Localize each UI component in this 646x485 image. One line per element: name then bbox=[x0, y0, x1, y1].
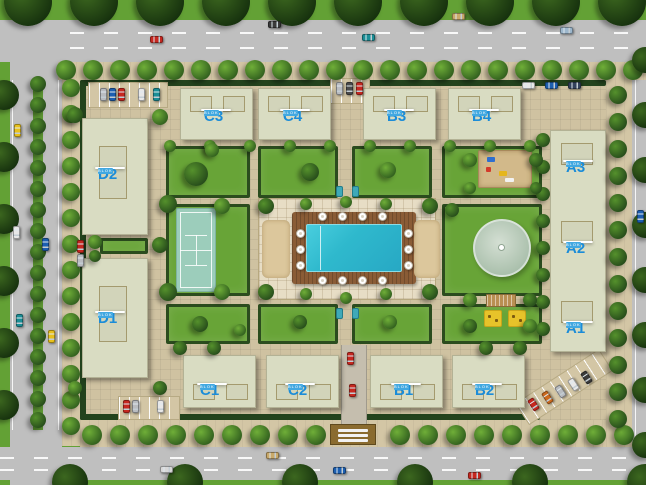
lounger-bench bbox=[336, 308, 343, 319]
tree bbox=[30, 412, 46, 428]
pergola-trellis bbox=[486, 294, 516, 307]
tree bbox=[164, 60, 184, 80]
umbrella-top bbox=[407, 248, 410, 251]
tree bbox=[258, 198, 274, 214]
tree bbox=[530, 425, 550, 445]
car bbox=[42, 238, 49, 251]
play-equipment bbox=[499, 171, 507, 176]
umbrella-top bbox=[407, 232, 410, 235]
pool-umbrella bbox=[318, 212, 327, 221]
building-courtyard-outline bbox=[226, 384, 248, 400]
building-sub-label: BLOK bbox=[204, 110, 219, 116]
tree bbox=[596, 60, 616, 80]
lounger-bench bbox=[352, 308, 359, 319]
tree bbox=[542, 60, 562, 80]
tree bbox=[524, 140, 536, 152]
umbrella-top bbox=[407, 264, 410, 267]
tree bbox=[536, 133, 550, 147]
tree bbox=[569, 60, 589, 80]
car bbox=[150, 36, 163, 43]
pool-umbrella bbox=[358, 212, 367, 221]
car bbox=[346, 82, 353, 95]
umbrella-top bbox=[361, 215, 364, 218]
car bbox=[336, 82, 343, 95]
mat-dot bbox=[488, 315, 491, 318]
building-courtyard-outline bbox=[309, 384, 331, 400]
mat-dot bbox=[495, 319, 498, 322]
tree bbox=[244, 140, 256, 152]
tree bbox=[30, 328, 46, 344]
car bbox=[637, 210, 644, 223]
tree bbox=[464, 182, 476, 194]
tree bbox=[218, 60, 238, 80]
sunbathing-sand bbox=[262, 220, 290, 278]
tree bbox=[306, 425, 326, 445]
umbrella-top bbox=[299, 264, 302, 267]
lane-dashes bbox=[0, 469, 646, 471]
building-sub-label: BLOK bbox=[98, 312, 113, 318]
umbrella-top bbox=[341, 279, 344, 282]
tree bbox=[609, 329, 627, 347]
car bbox=[452, 13, 465, 20]
tree bbox=[364, 140, 376, 152]
building-label-a1[interactable]: A1BLOK bbox=[563, 321, 593, 323]
tree bbox=[30, 286, 46, 302]
tree bbox=[30, 97, 46, 113]
tree bbox=[445, 203, 459, 217]
tree bbox=[340, 196, 352, 208]
tree bbox=[137, 60, 157, 80]
tree bbox=[250, 425, 270, 445]
lounger-bench bbox=[336, 186, 343, 197]
tree bbox=[614, 425, 634, 445]
tree bbox=[422, 284, 438, 300]
tree bbox=[62, 417, 80, 435]
tree bbox=[88, 235, 102, 249]
tree bbox=[30, 265, 46, 281]
building-label-c3[interactable]: C3BLOK bbox=[201, 109, 231, 111]
tree bbox=[513, 341, 527, 355]
tree bbox=[56, 60, 76, 80]
tree bbox=[159, 195, 177, 213]
tree bbox=[434, 60, 454, 80]
car bbox=[362, 34, 375, 41]
tree bbox=[380, 288, 392, 300]
tree bbox=[67, 107, 83, 123]
tree bbox=[463, 319, 477, 333]
tree bbox=[138, 425, 158, 445]
tree bbox=[30, 76, 46, 92]
tree bbox=[444, 140, 456, 152]
tree bbox=[326, 60, 346, 80]
tree bbox=[463, 293, 477, 307]
pool-umbrella bbox=[378, 276, 387, 285]
pool-umbrella bbox=[404, 229, 413, 238]
lawn bbox=[258, 146, 338, 198]
car bbox=[333, 467, 346, 474]
site-plan-canvas: D2BLOKD1BLOKC3BLOKC4BLOKB3BLOKB4BLOKA3BL… bbox=[0, 0, 646, 485]
tree bbox=[418, 425, 438, 445]
tree bbox=[152, 237, 168, 253]
gate-bar bbox=[338, 429, 369, 432]
car bbox=[132, 400, 139, 413]
pool-lane-line bbox=[320, 226, 321, 270]
car bbox=[568, 82, 581, 89]
car bbox=[468, 472, 481, 479]
pool-umbrella bbox=[318, 276, 327, 285]
playground-sandbox bbox=[478, 150, 532, 188]
tree bbox=[609, 221, 627, 239]
tree bbox=[502, 425, 522, 445]
car bbox=[100, 88, 107, 101]
car bbox=[356, 82, 363, 95]
tree bbox=[62, 157, 80, 175]
tree bbox=[153, 381, 167, 395]
car bbox=[118, 88, 125, 101]
tree bbox=[515, 60, 535, 80]
building-sub-label: BLOK bbox=[200, 384, 215, 390]
car bbox=[77, 240, 84, 253]
road bbox=[0, 447, 646, 480]
tree bbox=[609, 302, 627, 320]
car bbox=[138, 88, 145, 101]
tree bbox=[62, 183, 80, 201]
fountain-center bbox=[498, 244, 505, 251]
lane-dashes bbox=[70, 47, 646, 49]
play-equipment bbox=[505, 178, 514, 182]
car bbox=[153, 88, 160, 101]
building-block bbox=[183, 355, 256, 408]
tree bbox=[609, 194, 627, 212]
tree bbox=[609, 86, 627, 104]
pool-umbrella bbox=[404, 261, 413, 270]
tree bbox=[446, 425, 466, 445]
lounger-bench bbox=[352, 186, 359, 197]
sunbathing-sand bbox=[414, 220, 440, 278]
tree bbox=[301, 163, 319, 181]
tree bbox=[324, 140, 336, 152]
tree bbox=[30, 391, 46, 407]
tree bbox=[62, 339, 80, 357]
tree bbox=[89, 250, 101, 262]
umbrella-top bbox=[381, 215, 384, 218]
tree bbox=[173, 341, 187, 355]
building-label-b4[interactable]: B4BLOK bbox=[469, 109, 499, 111]
entrance-gate bbox=[330, 424, 376, 445]
lane-line bbox=[12, 80, 13, 430]
car bbox=[560, 27, 573, 34]
tree bbox=[586, 425, 606, 445]
umbrella-top bbox=[299, 248, 302, 251]
tree bbox=[245, 60, 265, 80]
tree bbox=[523, 319, 537, 333]
pool-umbrella bbox=[378, 212, 387, 221]
building-label-b2[interactable]: B2BLOK bbox=[472, 383, 502, 385]
car bbox=[157, 400, 164, 413]
tree bbox=[30, 349, 46, 365]
mat-dot bbox=[512, 315, 515, 318]
tennis-court bbox=[176, 208, 216, 292]
tree bbox=[205, 143, 219, 157]
tree bbox=[194, 425, 214, 445]
building-label-c1[interactable]: C1BLOK bbox=[197, 383, 227, 385]
tree bbox=[523, 293, 537, 307]
tree bbox=[536, 214, 550, 228]
tree bbox=[258, 284, 274, 300]
road bbox=[0, 20, 646, 62]
car bbox=[77, 254, 84, 267]
car bbox=[349, 384, 356, 397]
pool-umbrella bbox=[338, 212, 347, 221]
tree bbox=[30, 370, 46, 386]
tree bbox=[484, 140, 496, 152]
tree bbox=[62, 209, 80, 227]
tree bbox=[166, 425, 186, 445]
building-label-d1[interactable]: D1BLOK bbox=[95, 311, 125, 313]
car bbox=[545, 82, 558, 89]
tree bbox=[529, 153, 543, 167]
umbrella-top bbox=[321, 279, 324, 282]
building-label-c4[interactable]: C4BLOK bbox=[280, 109, 310, 111]
tree bbox=[380, 162, 396, 178]
tree bbox=[159, 283, 177, 301]
tree bbox=[407, 60, 427, 80]
car bbox=[266, 452, 279, 459]
building-label-b1[interactable]: B1BLOK bbox=[391, 383, 421, 385]
car bbox=[14, 124, 21, 137]
building-label-c2[interactable]: C2BLOK bbox=[285, 383, 315, 385]
building-sub-label: BLOK bbox=[566, 242, 581, 248]
building-sub-label: BLOK bbox=[288, 384, 303, 390]
umbrella-top bbox=[361, 279, 364, 282]
building-sub-label: BLOK bbox=[472, 110, 487, 116]
tree bbox=[609, 248, 627, 266]
tree bbox=[536, 322, 550, 336]
tree bbox=[300, 288, 312, 300]
umbrella-top bbox=[321, 215, 324, 218]
building-label-a3[interactable]: A3BLOK bbox=[563, 160, 593, 162]
tree bbox=[353, 60, 373, 80]
tree bbox=[62, 287, 80, 305]
tree bbox=[30, 202, 46, 218]
tree bbox=[110, 60, 130, 80]
tree bbox=[463, 153, 477, 167]
car bbox=[123, 400, 130, 413]
play-equipment bbox=[486, 167, 491, 172]
tree bbox=[68, 381, 82, 395]
tree bbox=[422, 198, 438, 214]
tree bbox=[609, 275, 627, 293]
car bbox=[160, 466, 173, 473]
umbrella-top bbox=[381, 279, 384, 282]
tree bbox=[536, 295, 550, 309]
mat-dot bbox=[519, 319, 522, 322]
tree bbox=[474, 425, 494, 445]
tree bbox=[214, 284, 230, 300]
tree bbox=[207, 341, 221, 355]
building-sub-label: BLOK bbox=[98, 168, 113, 174]
car bbox=[48, 330, 55, 343]
pool-umbrella bbox=[296, 245, 305, 254]
gate-bar bbox=[338, 434, 369, 437]
tree bbox=[152, 109, 168, 125]
tree bbox=[558, 425, 578, 445]
tree bbox=[214, 198, 230, 214]
tree bbox=[609, 410, 627, 428]
tennis-center-line bbox=[196, 235, 197, 265]
tree bbox=[222, 425, 242, 445]
car bbox=[109, 88, 116, 101]
building-courtyard-outline bbox=[413, 384, 435, 400]
tree bbox=[284, 140, 296, 152]
tree bbox=[184, 162, 208, 186]
tree bbox=[404, 140, 416, 152]
tree bbox=[536, 268, 550, 282]
building-sub-label: BLOK bbox=[566, 161, 581, 167]
lane-line bbox=[58, 80, 59, 430]
tree bbox=[30, 118, 46, 134]
tree bbox=[488, 60, 508, 80]
car bbox=[522, 82, 535, 89]
tree bbox=[62, 79, 80, 97]
fountain-pond bbox=[473, 219, 531, 277]
building-sub-label: BLOK bbox=[387, 110, 402, 116]
tree bbox=[383, 315, 397, 329]
lane-dashes bbox=[0, 457, 646, 459]
building-sub-label: BLOK bbox=[475, 384, 490, 390]
tree bbox=[62, 365, 80, 383]
tree bbox=[609, 356, 627, 374]
tree bbox=[536, 241, 550, 255]
tree bbox=[30, 181, 46, 197]
tree bbox=[461, 60, 481, 80]
tree bbox=[278, 425, 298, 445]
play-equipment bbox=[487, 157, 495, 162]
tree bbox=[293, 315, 307, 329]
tree bbox=[83, 60, 103, 80]
pool-umbrella bbox=[338, 276, 347, 285]
building-sub-label: BLOK bbox=[394, 384, 409, 390]
tree bbox=[82, 425, 102, 445]
tree bbox=[30, 160, 46, 176]
tree bbox=[380, 60, 400, 80]
tree bbox=[192, 316, 208, 332]
building-label-a2[interactable]: A2BLOK bbox=[563, 241, 593, 243]
building-label-b3[interactable]: B3BLOK bbox=[384, 109, 414, 111]
tree bbox=[30, 223, 46, 239]
tree bbox=[340, 292, 352, 304]
tree bbox=[30, 139, 46, 155]
tree bbox=[30, 307, 46, 323]
tree bbox=[380, 198, 392, 210]
tree bbox=[390, 425, 410, 445]
pool-umbrella bbox=[358, 276, 367, 285]
tree bbox=[609, 167, 627, 185]
play-mat bbox=[484, 310, 502, 327]
car bbox=[13, 226, 20, 239]
building-courtyard-outline bbox=[495, 384, 517, 400]
tree bbox=[609, 383, 627, 401]
tree bbox=[234, 324, 246, 336]
lawn bbox=[100, 238, 148, 254]
pool-umbrella bbox=[296, 261, 305, 270]
tree bbox=[272, 60, 292, 80]
car bbox=[347, 352, 354, 365]
tree bbox=[62, 313, 80, 331]
tree bbox=[62, 131, 80, 149]
gate-bar bbox=[338, 439, 369, 442]
pool-umbrella bbox=[404, 245, 413, 254]
tree bbox=[164, 140, 176, 152]
umbrella-top bbox=[299, 232, 302, 235]
tennis-service-line bbox=[185, 265, 207, 266]
tree bbox=[530, 182, 542, 194]
pool-umbrella bbox=[296, 229, 305, 238]
building-label-d2[interactable]: D2BLOK bbox=[95, 167, 125, 169]
tree bbox=[609, 140, 627, 158]
car bbox=[268, 21, 281, 28]
building-sub-label: BLOK bbox=[283, 110, 298, 116]
building-sub-label: BLOK bbox=[566, 322, 581, 328]
tree bbox=[479, 341, 493, 355]
tree bbox=[299, 60, 319, 80]
car bbox=[16, 314, 23, 327]
umbrella-top bbox=[341, 215, 344, 218]
tree bbox=[300, 198, 312, 210]
tree bbox=[110, 425, 130, 445]
tree bbox=[191, 60, 211, 80]
tree bbox=[609, 113, 627, 131]
